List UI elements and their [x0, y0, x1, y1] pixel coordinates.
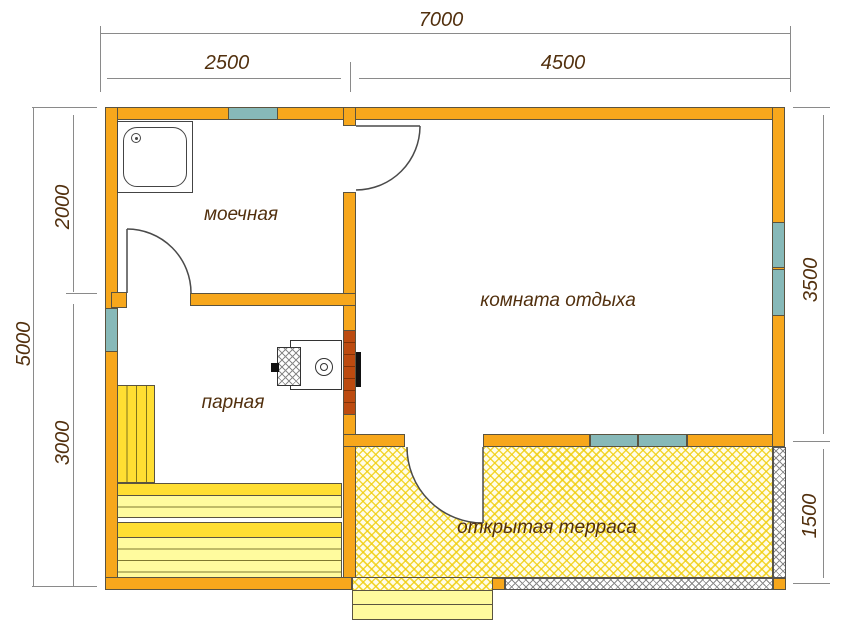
terrace-steps — [352, 590, 493, 620]
bench-lower-slats — [118, 538, 341, 578]
dim-line-width-right — [359, 78, 790, 79]
wall-washroom-steam-stub — [111, 292, 127, 308]
dim-tick-top-mid — [350, 62, 351, 92]
dim-line-width-left — [107, 78, 341, 79]
dim-line-right-lower — [823, 449, 824, 578]
floor-plan: 7000 2500 4500 5000 2000 3000 3500 1500 — [0, 0, 850, 633]
window-left — [105, 308, 118, 352]
dim-total-width: 7000 — [391, 8, 491, 32]
window-terrace-2 — [638, 434, 687, 447]
dim-tick-right-mid — [793, 441, 830, 442]
wall-interior-vertical-stub — [343, 107, 356, 126]
washroom-steam-door-arc — [127, 229, 191, 293]
bench-upper — [117, 483, 342, 518]
dim-width-left: 2500 — [177, 51, 277, 75]
dim-tick-left-bottom — [32, 586, 97, 587]
bench-lower — [117, 522, 342, 578]
dim-total-height: 5000 — [12, 294, 36, 394]
wall-terrace-left — [343, 434, 405, 447]
dim-height-lower: 3000 — [51, 393, 75, 493]
window-terrace-1 — [590, 434, 638, 447]
dim-right-lower: 1500 — [798, 466, 822, 566]
firebox-door — [356, 352, 361, 387]
wall-bottom — [105, 577, 352, 590]
dim-right-upper: 3500 — [799, 230, 823, 330]
dim-width-right: 4500 — [513, 51, 613, 75]
terrace-edge-right — [773, 447, 786, 578]
stove-heater-nub — [271, 363, 279, 372]
bench-lower-edge — [118, 523, 341, 538]
stove-burner-inner — [320, 363, 328, 371]
ext-line-top-right — [790, 26, 791, 92]
terrace-floor-strip — [352, 578, 492, 590]
dim-tick-left-mid — [66, 293, 97, 294]
wall-terrace-mid — [483, 434, 590, 447]
terrace-corner-post-left — [492, 578, 505, 590]
terrace-floor — [352, 447, 773, 578]
wall-terrace-right — [687, 434, 773, 447]
dim-line-right-upper — [823, 115, 824, 434]
dim-tick-right-top — [793, 107, 830, 108]
window-top — [228, 107, 278, 120]
ext-line-top-left — [100, 26, 101, 92]
shower-drain-dot — [135, 137, 138, 140]
window-right-lower — [772, 269, 785, 316]
wall-washroom-steam — [190, 293, 356, 306]
terrace-edge-bottom — [505, 578, 773, 590]
dim-line-total-width — [100, 33, 790, 34]
wall-brick-section — [343, 330, 356, 415]
label-washroom: моечная — [141, 204, 341, 226]
terrace-corner-post-right — [773, 578, 786, 590]
wall-top — [105, 107, 785, 120]
dim-tick-left-top — [32, 107, 97, 108]
label-terrace: открытая терраса — [437, 517, 657, 539]
dim-height-upper: 2000 — [51, 157, 75, 257]
stove-heater — [277, 347, 301, 386]
step-divider — [353, 604, 492, 605]
label-steam-room: парная — [133, 392, 333, 414]
dim-tick-right-bottom — [793, 583, 830, 584]
window-right-upper — [772, 222, 785, 268]
washroom-lounge-door-arc — [356, 126, 420, 190]
bench-upper-slats — [118, 496, 341, 518]
label-lounge: комната отдыха — [458, 290, 658, 312]
bench-upper-edge — [118, 484, 341, 496]
